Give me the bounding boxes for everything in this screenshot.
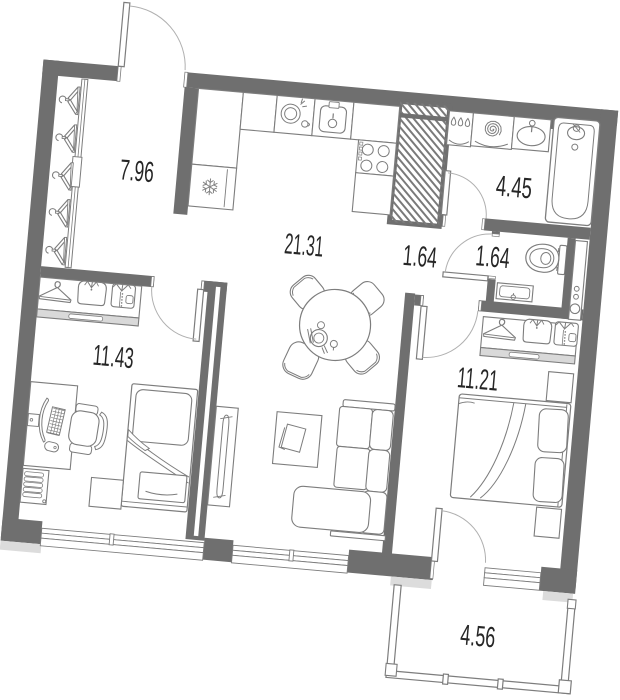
svg-text:11.43: 11.43 (91, 340, 135, 376)
svg-text:4.56: 4.56 (459, 619, 497, 654)
svg-text:7.96: 7.96 (119, 154, 156, 189)
svg-text:11.21: 11.21 (456, 362, 500, 398)
svg-text:1.64: 1.64 (402, 240, 439, 275)
svg-text:4.45: 4.45 (495, 170, 534, 205)
svg-text:21.31: 21.31 (283, 228, 325, 263)
svg-text:1.64: 1.64 (474, 240, 511, 275)
